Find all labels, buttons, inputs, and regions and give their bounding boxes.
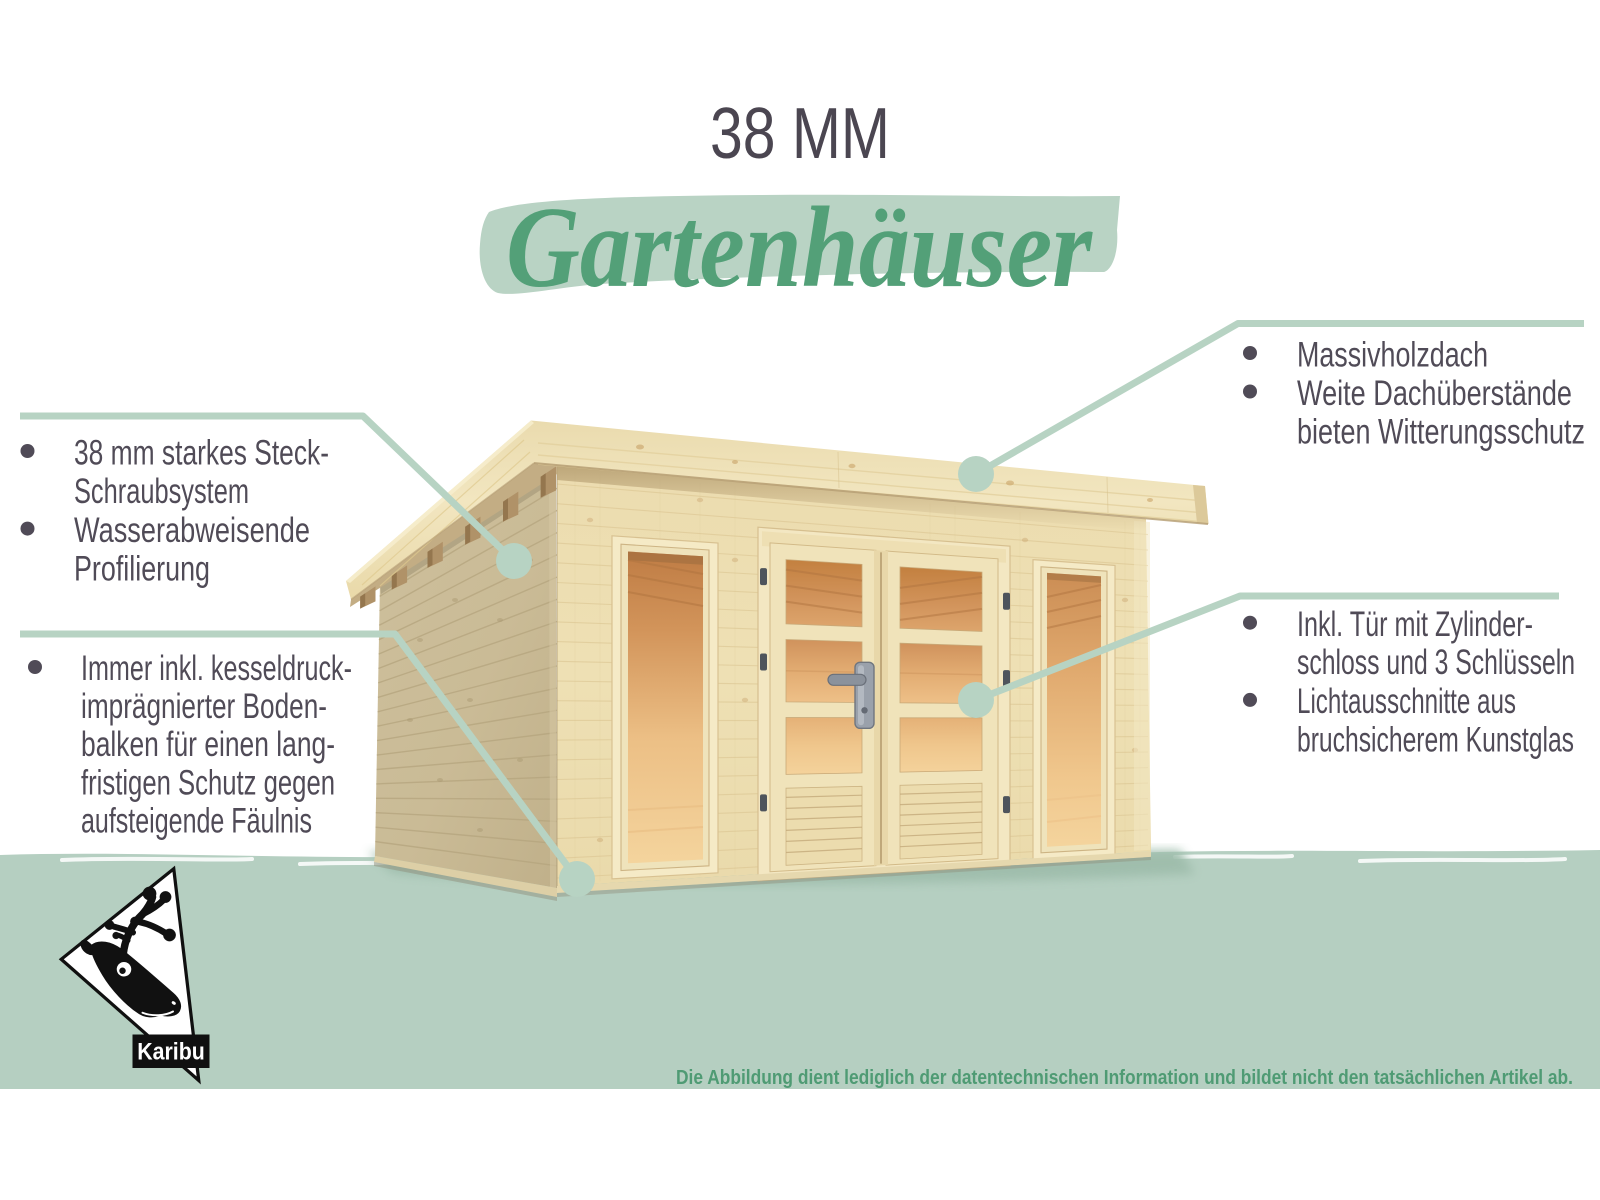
svg-text:bruchsicherem Kunstglas: bruchsicherem Kunstglas: [1297, 720, 1574, 759]
svg-text:38 mm starkes Steck-: 38 mm starkes Steck-: [74, 433, 329, 472]
svg-text:38 MM: 38 MM: [710, 94, 890, 174]
svg-text:aufsteigende Fäulnis: aufsteigende Fäulnis: [81, 801, 312, 840]
svg-text:Schraubsystem: Schraubsystem: [74, 472, 249, 511]
svg-text:Massivholzdach: Massivholzdach: [1297, 336, 1488, 375]
svg-text:Wasserabweisende: Wasserabweisende: [74, 511, 310, 550]
svg-text:schloss und 3 Schlüsseln: schloss und 3 Schlüsseln: [1297, 643, 1575, 682]
svg-text:Karibu: Karibu: [137, 1039, 205, 1066]
svg-text:Immer inkl. kesseldruck-: Immer inkl. kesseldruck-: [81, 649, 352, 688]
svg-text:Inkl. Tür mit Zylinder-: Inkl. Tür mit Zylinder-: [1297, 605, 1533, 644]
svg-text:bieten Witterungsschutz: bieten Witterungsschutz: [1297, 413, 1585, 452]
svg-text:Weite Dachüberstände: Weite Dachüberstände: [1297, 374, 1572, 413]
svg-text:Profilierung: Profilierung: [74, 550, 210, 589]
svg-text:Gartenhäuser: Gartenhäuser: [506, 184, 1093, 312]
svg-text:Die Abbildung dient lediglich: Die Abbildung dient lediglich der datent…: [676, 1066, 1573, 1089]
svg-text:balken für einen lang-: balken für einen lang-: [81, 725, 335, 764]
svg-text:imprägnierter Boden-: imprägnierter Boden-: [81, 687, 327, 726]
svg-text:Lichtausschnitte aus: Lichtausschnitte aus: [1297, 682, 1516, 721]
svg-text:fristigen Schutz gegen: fristigen Schutz gegen: [81, 763, 335, 802]
